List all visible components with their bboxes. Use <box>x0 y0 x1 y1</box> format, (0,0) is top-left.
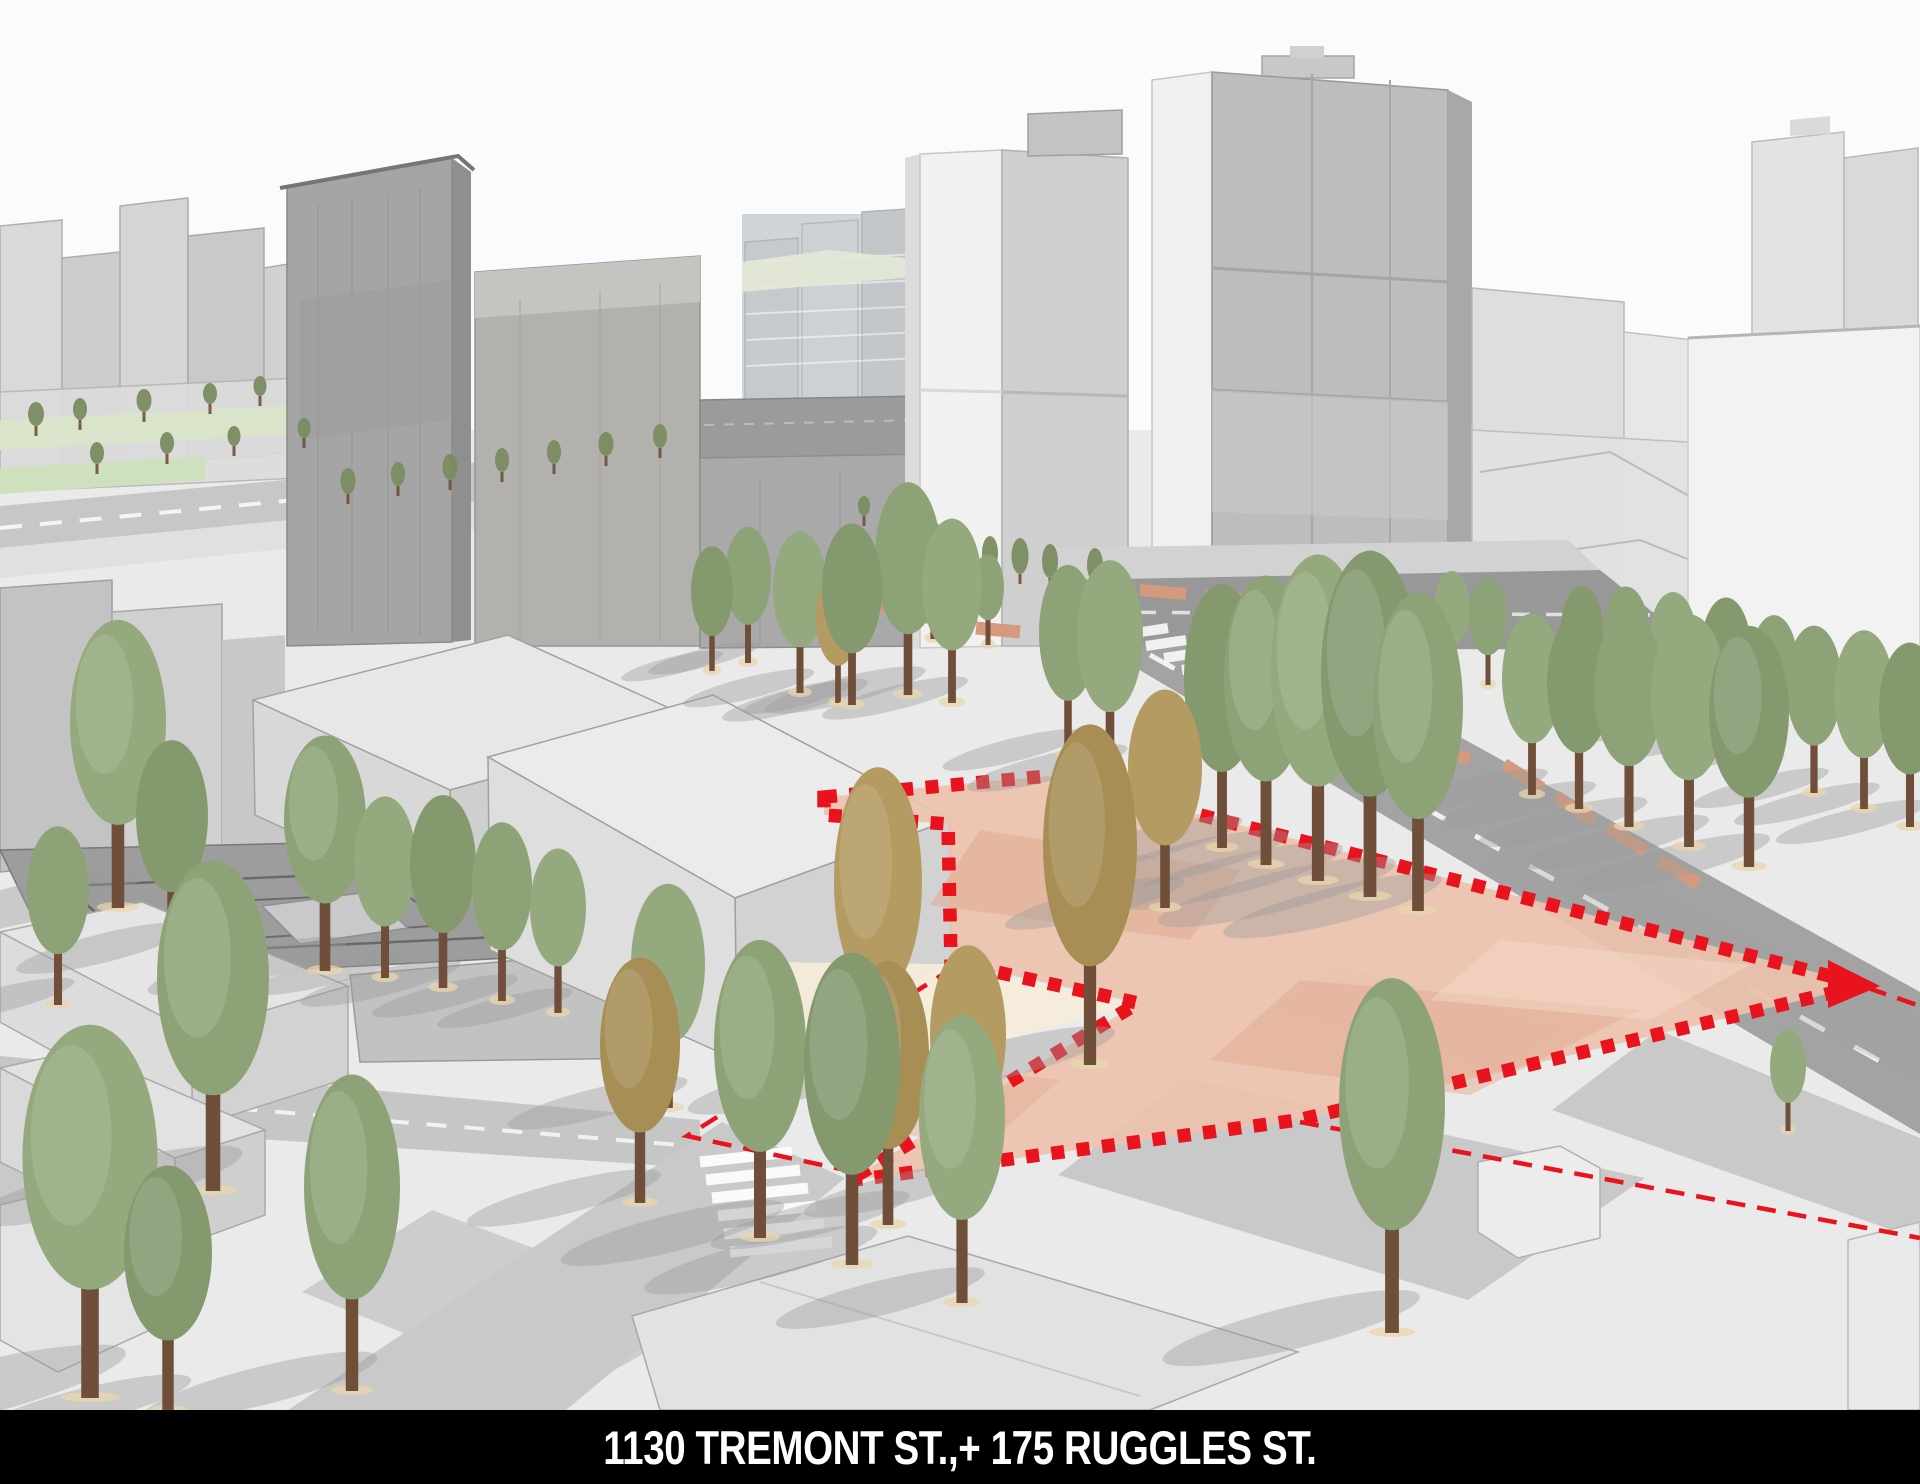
tree-trunk <box>948 645 956 703</box>
tree-trunk <box>883 1143 894 1225</box>
far-tree-canopy <box>599 432 614 456</box>
distant-right-tower <box>1752 132 1844 338</box>
far-tree-canopy <box>228 426 241 446</box>
tree-trunk <box>1860 752 1868 809</box>
tree-canopy <box>410 795 476 933</box>
tree-canopy-highlight <box>76 634 134 773</box>
tree-trunk <box>439 927 448 988</box>
tree-trunk <box>846 1169 858 1265</box>
tree-trunk <box>956 1214 967 1303</box>
tree-trunk <box>554 960 561 1013</box>
tree-trunk <box>1744 792 1754 867</box>
tree-trunk <box>346 1294 358 1392</box>
tree-trunk <box>320 897 331 971</box>
far-tree-canopy <box>653 424 667 448</box>
tree-canopy <box>1770 1029 1806 1103</box>
far-tree-trunk <box>35 426 38 436</box>
tree-trunk <box>1906 769 1914 827</box>
tree-trunk <box>835 660 841 703</box>
tree-trunk <box>709 630 714 671</box>
tree-trunk <box>1624 760 1633 827</box>
tree-trunk <box>848 647 856 705</box>
paver-strip <box>1140 590 1186 594</box>
tower-band-light <box>1212 390 1448 520</box>
tree-trunk <box>745 619 751 663</box>
tree-canopy <box>530 848 586 966</box>
far-tree-trunk <box>1019 574 1022 584</box>
far-tree-trunk <box>553 464 556 474</box>
aerial-3d-site-map <box>0 0 1920 1484</box>
tree-trunk <box>54 948 62 1005</box>
tower-white-strip <box>1152 72 1212 606</box>
tree-trunk <box>1217 766 1227 848</box>
tree-trunk <box>1312 781 1324 881</box>
tree-trunk <box>498 944 506 1001</box>
tower-roof-box <box>1262 56 1354 78</box>
tree-trunk <box>1412 813 1424 911</box>
tree-trunk <box>904 628 913 695</box>
far-tree-canopy <box>495 448 509 472</box>
tree-canopy <box>1469 577 1507 655</box>
tree-trunk <box>81 1284 99 1398</box>
tree-trunk <box>1810 740 1817 793</box>
tree-trunk <box>1684 774 1694 847</box>
tree-canopy-highlight <box>1378 610 1432 764</box>
far-tree-canopy <box>160 432 174 454</box>
tree-canopy <box>354 796 416 926</box>
far-tree-canopy <box>858 496 870 516</box>
tree-canopy-highlight <box>129 1177 182 1296</box>
site-presentation-slide: 1130 TREMONT ST.,+ 175 RUGGLES ST. <box>0 0 1920 1484</box>
tree-canopy-highlight <box>1714 637 1762 754</box>
tree-trunk <box>381 920 389 978</box>
tree-canopy-highlight <box>164 878 231 1038</box>
tower-main-face <box>1212 72 1448 602</box>
tree-canopy <box>1786 626 1842 746</box>
penthouse <box>1028 110 1122 156</box>
tree-canopy-highlight <box>1049 743 1105 908</box>
far-tree-canopy <box>547 440 561 464</box>
tree-canopy-highlight <box>31 1045 112 1225</box>
tree-canopy-highlight <box>310 1091 368 1244</box>
far-tree-canopy <box>137 389 152 412</box>
tree-canopy-highlight <box>810 969 868 1120</box>
tree-canopy <box>725 527 771 625</box>
far-tree-canopy <box>341 468 356 494</box>
far-tree-trunk <box>233 446 236 456</box>
rendering-canvas <box>0 0 1920 1484</box>
tree-trunk <box>796 641 803 693</box>
paver-strip <box>976 628 1020 632</box>
bottom-right-box <box>1848 1222 1920 1410</box>
tree-trunk <box>1364 791 1377 897</box>
tree-trunk <box>635 1127 645 1204</box>
tree-canopy <box>691 546 733 636</box>
tree-trunk <box>1084 960 1096 1065</box>
tree-trunk <box>1528 737 1536 795</box>
tree-trunk <box>162 1335 173 1412</box>
distant-right-tower <box>1844 148 1918 346</box>
tree-canopy-highlight <box>289 746 338 860</box>
tree-trunk <box>112 819 124 908</box>
tower-side-face <box>1448 90 1472 602</box>
far-tree-canopy <box>203 383 217 404</box>
tree-trunk <box>1160 839 1170 908</box>
tree-trunk <box>206 1089 221 1191</box>
far-tree-trunk <box>397 486 400 496</box>
far-tree-trunk <box>501 472 504 482</box>
far-tree-trunk <box>166 454 169 464</box>
far-tree-canopy <box>443 454 458 480</box>
facade-shade <box>300 280 450 440</box>
tree-canopy <box>822 523 882 653</box>
tree-canopy-highlight <box>839 784 892 939</box>
tree-canopy-highlight <box>605 969 653 1088</box>
far-tree-canopy <box>73 398 87 420</box>
far-tree-canopy <box>391 462 405 486</box>
tree-canopy <box>27 826 89 954</box>
far-tree-trunk <box>96 464 99 474</box>
tree-canopy <box>1128 689 1202 845</box>
banner-title: 1130 TREMONT ST.,+ 175 RUGGLES ST. <box>603 1420 1316 1475</box>
far-tree-trunk <box>659 448 662 458</box>
far-tree-trunk <box>863 516 866 526</box>
tree-canopy-highlight <box>924 1029 976 1168</box>
tree-canopy <box>1077 560 1143 712</box>
tree-canopy <box>472 822 532 950</box>
title-banner: 1130 TREMONT ST.,+ 175 RUGGLES ST. <box>0 1410 1920 1484</box>
tower-roof-box <box>1290 46 1324 58</box>
tree-canopy-highlight <box>1345 997 1409 1168</box>
tree-trunk <box>1575 747 1583 809</box>
crosswalk-bar <box>1146 640 1186 646</box>
far-tree-canopy <box>1012 538 1029 574</box>
far-tree-trunk <box>449 480 452 490</box>
right-small-box <box>1478 1146 1600 1258</box>
far-tree-canopy <box>90 442 104 464</box>
dark-tower-side <box>452 158 471 642</box>
far-tree-trunk <box>259 396 262 406</box>
far-tree-trunk <box>79 420 82 430</box>
far-tree-trunk <box>143 412 146 422</box>
tree-canopy-highlight <box>720 955 775 1099</box>
far-tree-canopy <box>28 402 44 426</box>
far-tree-trunk <box>605 456 608 466</box>
far-tree-canopy <box>254 376 267 396</box>
far-tree-canopy <box>298 418 311 438</box>
elevated-deck <box>700 396 925 464</box>
tree-trunk <box>1385 1224 1399 1333</box>
far-tree-trunk <box>209 404 212 414</box>
far-tree-trunk <box>347 494 350 504</box>
tree-trunk <box>1261 775 1272 865</box>
tree-trunk <box>754 1146 766 1238</box>
tree-canopy <box>922 519 982 651</box>
slab-band <box>920 390 1002 392</box>
far-tree-trunk <box>303 438 306 448</box>
